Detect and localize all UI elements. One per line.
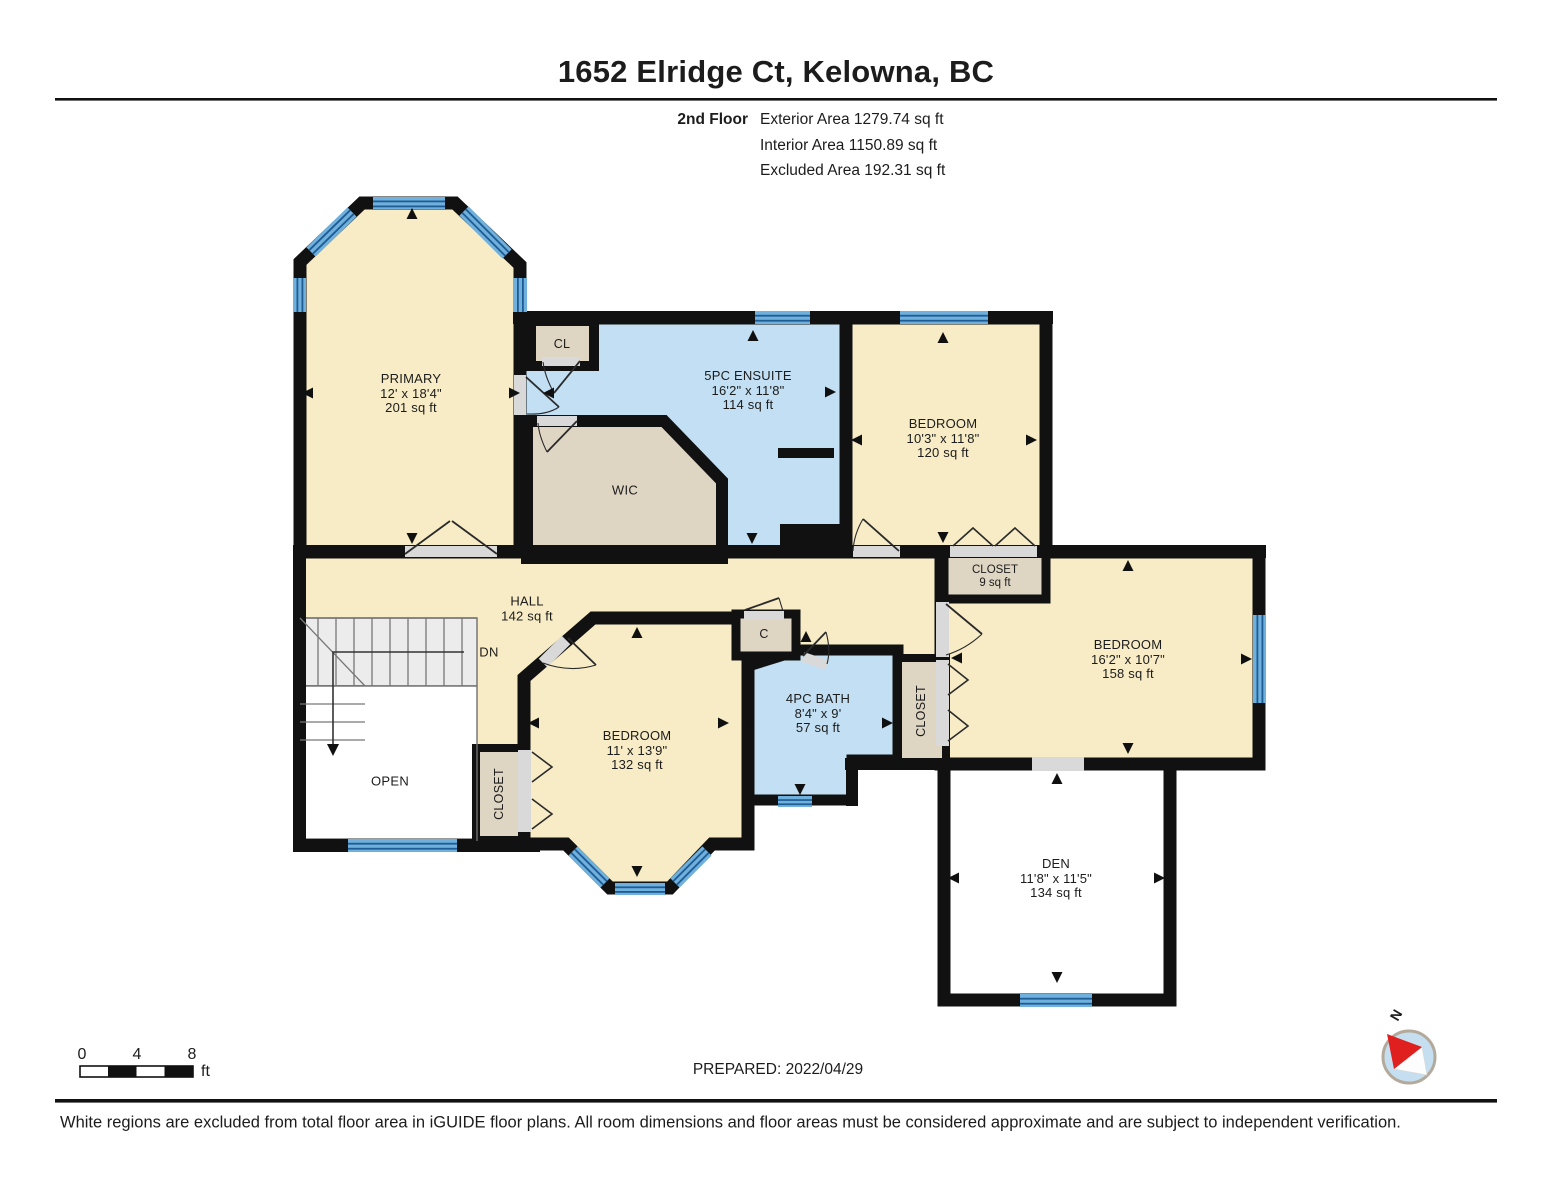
window-bedroom-top	[900, 311, 988, 324]
scale-tick-0: 0	[78, 1046, 87, 1064]
label-hall: HALL142 sq ft	[501, 565, 553, 652]
page-title: 1652 Elridge Ct, Kelowna, BC	[558, 54, 994, 90]
window-open-bottom	[348, 839, 457, 852]
label-wic: WIC	[612, 483, 638, 498]
scale-tick-4: 4	[133, 1046, 142, 1064]
floor-plan-page: 1652 Elridge Ct, Kelowna, BC 2nd Floor E…	[0, 0, 1553, 1200]
label-bath: 4PC BATH8'4" x 9'57 sq ft	[786, 663, 850, 765]
label-dn: DN	[479, 645, 498, 660]
scale-tick-8: 8	[188, 1046, 197, 1064]
floor-label: 2nd Floor	[677, 111, 748, 129]
label-cl: CL	[554, 337, 571, 351]
label-closet-middle: CLOSET	[492, 768, 506, 820]
label-ensuite: 5PC ENSUITE16'2" x 11'8"114 sq ft	[704, 340, 791, 442]
label-open: OPEN	[371, 774, 409, 789]
exterior-area: Exterior Area 1279.74 sq ft	[760, 111, 944, 129]
window-ensuite-top	[755, 311, 810, 324]
window-bath-bottom	[778, 796, 812, 807]
excluded-area: Excluded Area 192.31 sq ft	[760, 162, 945, 180]
label-den: DEN11'8" x 11'5"134 sq ft	[1020, 828, 1092, 930]
label-bedroom-right: BEDROOM16'2" x 10'7"158 sq ft	[1091, 609, 1165, 711]
label-bedroom-middle: BEDROOM11' x 13'9"132 sq ft	[603, 700, 672, 802]
scale-unit: ft	[201, 1063, 210, 1081]
label-primary: PRIMARY12' x 18'4"201 sq ft	[380, 343, 442, 445]
label-closet-right: CLOSET	[914, 685, 928, 737]
window-bay-top	[373, 197, 445, 209]
interior-area: Interior Area 1150.89 sq ft	[760, 137, 937, 155]
open-to-below	[303, 686, 477, 839]
scale-bar	[80, 1066, 193, 1077]
window-primary-right	[513, 278, 527, 312]
window-bedroom-right	[1253, 615, 1266, 703]
disclaimer: White regions are excluded from total fl…	[60, 1114, 1401, 1133]
label-bedroom-top: BEDROOM10'3" x 11'8"120 sq ft	[907, 388, 980, 490]
window-den-bottom	[1020, 994, 1092, 1007]
window-primary-left	[293, 278, 306, 312]
window-baywin-bottom	[615, 883, 665, 895]
prepared-date: PREPARED: 2022/04/29	[693, 1061, 863, 1079]
compass-icon	[1383, 1031, 1435, 1083]
label-closet-9sqft: CLOSET9 sq ft	[972, 539, 1018, 615]
floor-plan-drawing	[0, 0, 1553, 1200]
label-c: C	[759, 627, 768, 641]
